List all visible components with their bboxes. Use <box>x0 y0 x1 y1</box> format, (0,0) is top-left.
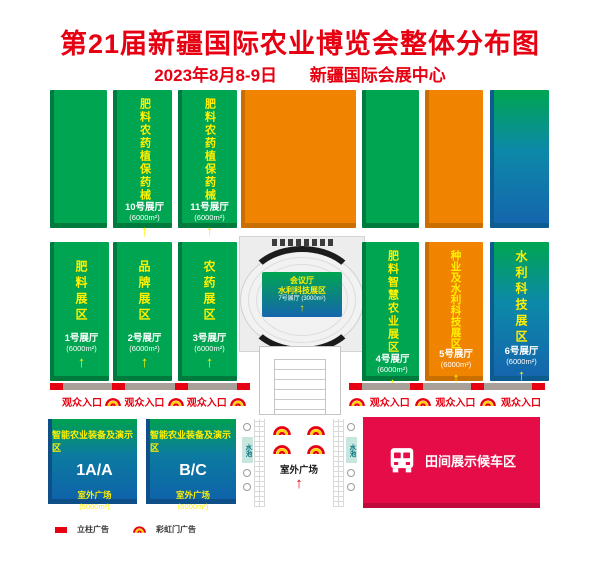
planting-grid-right <box>333 419 344 507</box>
visitor-entrance-label: 观众入口 <box>124 394 164 409</box>
entrance-row-left: 观众入口 观众入口 观众入口 <box>62 394 246 409</box>
hall-5-name: 5号展厅 <box>439 349 473 360</box>
up-arrow: ↑ <box>78 355 86 376</box>
hall-10: 肥料农药植保药械 10号展厅 (6000m²) ↑ <box>113 90 172 228</box>
entrance-row-right: 观众入口 观众入口 观众入口 <box>349 394 541 409</box>
page-subtitle: 2023年8月8-9日 新疆国际会展中心 <box>0 61 600 86</box>
visitor-entrance-label: 观众入口 <box>501 394 541 409</box>
outdoor-block-size: (5000m²) <box>178 502 208 511</box>
hall-blank-gradient-top <box>490 90 549 228</box>
rainbow-gate-icon <box>105 397 121 407</box>
expo-map: 第21届新疆国际农业博览会整体分布图 2023年8月8-9日 新疆国际会展中心 … <box>0 0 600 566</box>
outdoor-block-code: 1A/A <box>76 462 112 480</box>
hall-2: 品牌展区 2号展厅 (6000m²) ↑ <box>113 242 172 381</box>
pillar-ad-marker <box>175 383 188 390</box>
hall-1-area-label: 肥料展区 <box>73 260 90 324</box>
plaza-label: 室外广场 <box>280 462 318 476</box>
pillar-rail-left: 水池 <box>240 417 254 512</box>
plaza-center: 室外广场 ↑ <box>265 417 333 512</box>
hall-11-size: (6000m²) <box>194 213 224 222</box>
hall-3-area-label: 农药展区 <box>201 260 218 324</box>
stairway <box>259 346 341 415</box>
bus-area-label: 田间展示候车区 <box>425 451 516 470</box>
up-arrow: ↑ <box>300 304 305 314</box>
outdoor-block-1aa: 智能农业装备及演示区 1A/A 室外广场 (5000m²) <box>48 419 137 504</box>
outdoor-block-sub: 室外广场 <box>176 489 210 501</box>
hall-2-size: (6000m²) <box>129 344 159 353</box>
rainbow-gate-icon <box>273 425 291 436</box>
hall-6-size: (6000m²) <box>506 357 536 366</box>
pillar-ad-marker <box>50 383 63 390</box>
rainbow-gate-icon <box>273 444 291 455</box>
roof-vents <box>239 239 365 246</box>
visitor-entrance-label: 观众入口 <box>187 394 227 409</box>
hall-11-name: 11号展厅 <box>190 202 229 213</box>
conference-hall-sign: 会议厅 水利科技展区 7号展厅 (3000m²) ↑ <box>262 272 342 317</box>
page-title: 第21届新疆国际农业博览会整体分布图 <box>0 22 600 61</box>
center-building: 会议厅 水利科技展区 7号展厅 (3000m²) ↑ <box>239 233 365 415</box>
hall-5-size: (6000m²) <box>441 360 471 369</box>
planting-grid-left <box>254 419 265 507</box>
hall-blank-orange-top <box>425 90 483 228</box>
outdoor-plaza: 水池 室外广场 ↑ 水池 <box>240 417 358 512</box>
hall-10-area-label: 肥料农药植保药械 <box>137 98 153 202</box>
rainbow-gate-icon <box>415 397 431 407</box>
hall-4-area-label: 肥料智慧农业展区 <box>385 250 401 354</box>
pillar-ad-marker <box>349 383 362 390</box>
field-display-bus-area: 田间展示候车区 <box>363 417 540 508</box>
hall-4-name: 4号展厅 <box>376 354 410 365</box>
water-pool-label: 水池 <box>242 437 253 463</box>
hall-7-name: 7号展厅 (3000m²) <box>278 296 325 303</box>
up-arrow: ↑ <box>295 476 303 491</box>
outdoor-block-title: 智能农业装备及演示区 <box>52 428 137 454</box>
visitor-entrance-label: 观众入口 <box>370 394 410 409</box>
hall-3: 农药展区 3号展厅 (6000m²) ↑ <box>178 242 237 381</box>
hall-6-area-label: 水利科技展区 <box>513 250 530 346</box>
hall-6: 水利科技展区 6号展厅 (6000m²) ↑ <box>490 242 549 381</box>
up-arrow: ↑ <box>206 355 214 376</box>
rainbow-gate-icon <box>480 397 496 407</box>
visitor-entrance-label: 观众入口 <box>435 394 475 409</box>
hall-10-name: 10号展厅 <box>125 202 164 213</box>
hall-5: 种业及水利科技展区 5号展厅 (6000m²) ↑ <box>425 242 483 381</box>
outdoor-block-code: B/C <box>179 462 207 480</box>
rainbow-gate-icon <box>133 525 146 534</box>
hall-blank-top-left <box>50 90 107 228</box>
hall-11: 肥料农药植保药械 11号展厅 (6000m²) ↑ <box>178 90 237 228</box>
hall-1-size: (6000m²) <box>66 344 96 353</box>
outdoor-block-title: 智能农业装备及演示区 <box>150 428 236 454</box>
hall-2-name: 2号展厅 <box>128 333 162 344</box>
rainbow-gate-icon <box>307 444 325 455</box>
outdoor-block-bc: 智能农业装备及演示区 B/C 室外广场 (5000m²) <box>146 419 236 504</box>
hall-5-area-label: 种业及水利科技展区 <box>449 250 464 349</box>
legend-rainbow-label: 彩虹门广告 <box>156 524 196 535</box>
up-arrow: ↑ <box>141 355 149 376</box>
legend-pillar-label: 立柱广告 <box>77 524 109 535</box>
sign-line2: 水利科技展区 <box>278 286 326 295</box>
hall-10-size: (6000m²) <box>129 213 159 222</box>
water-pool-label: 水池 <box>346 437 357 463</box>
pillar-ad-strip-left <box>50 383 250 390</box>
hall-3-name: 3号展厅 <box>193 333 227 344</box>
sign-line1: 会议厅 <box>290 276 314 285</box>
rainbow-gate-icon <box>307 425 325 436</box>
pillar-ad-marker <box>112 383 125 390</box>
rainbow-gate-icon <box>349 397 365 407</box>
hall-blank-green-top <box>362 90 419 228</box>
hall-3-size: (6000m²) <box>194 344 224 353</box>
pillar-ad-marker <box>410 383 423 390</box>
pillar-rail-right: 水池 <box>344 417 358 512</box>
visitor-entrance-label: 观众入口 <box>62 394 102 409</box>
event-date: 2023年8月8-9日 <box>154 66 277 85</box>
hall-4: 肥料智慧农业展区 4号展厅 (6000m²) ↑ <box>362 242 419 381</box>
outdoor-block-sub: 室外广场 <box>77 489 111 501</box>
rainbow-gate-icon <box>230 397 246 407</box>
legend-pillar-swatch <box>55 527 67 533</box>
hall-11-area-label: 肥料农药植保药械 <box>202 98 218 202</box>
pillar-ad-marker <box>471 383 484 390</box>
hall-blank-orange-large <box>241 90 356 228</box>
bus-icon <box>387 445 417 475</box>
pillar-ad-marker <box>532 383 545 390</box>
rainbow-gate-icon <box>168 397 184 407</box>
legend: 立柱广告 彩虹门广告 <box>55 524 196 535</box>
pillar-ad-strip-right <box>349 383 545 390</box>
hall-1: 肥料展区 1号展厅 (6000m²) ↑ <box>50 242 109 381</box>
pillar-ad-marker <box>237 383 250 390</box>
hall-4-size: (6000m²) <box>377 365 407 374</box>
venue-name: 新疆国际会展中心 <box>310 66 446 85</box>
hall-2-area-label: 品牌展区 <box>136 260 153 324</box>
hall-1-name: 1号展厅 <box>65 333 99 344</box>
hall-6-name: 6号展厅 <box>505 346 539 357</box>
outdoor-block-size: (5000m²) <box>79 502 109 511</box>
